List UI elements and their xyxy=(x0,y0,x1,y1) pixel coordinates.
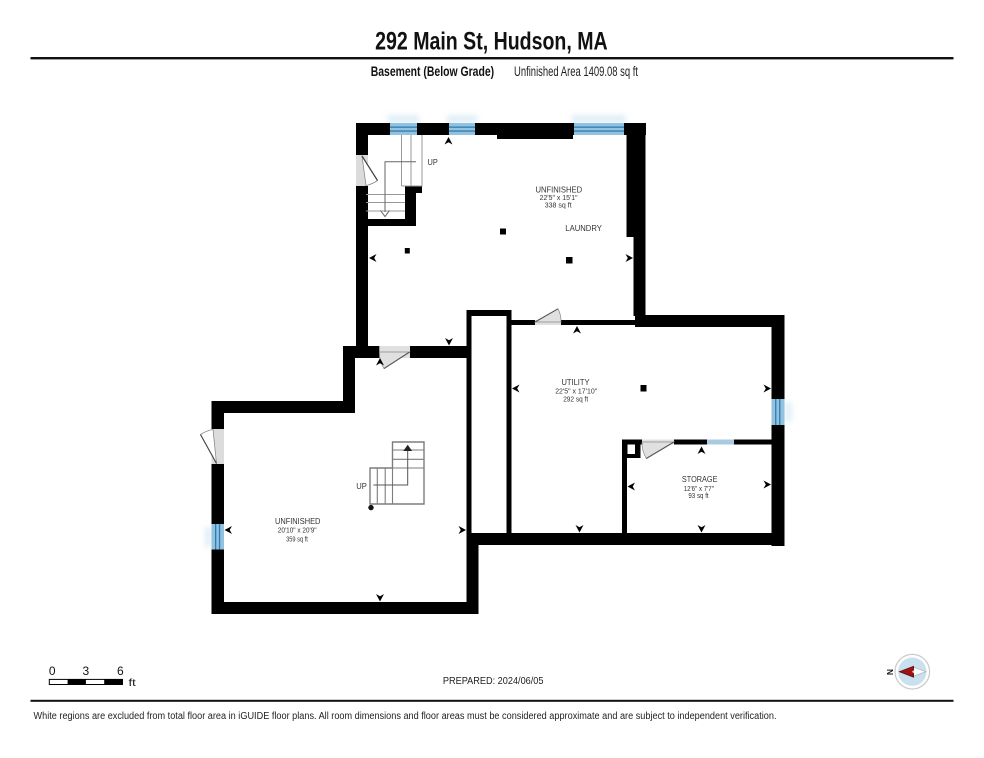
svg-text:93 sq ft: 93 sq ft xyxy=(688,491,709,500)
svg-text:6: 6 xyxy=(117,664,124,678)
svg-text:UP: UP xyxy=(428,157,439,167)
svg-text:PREPARED: 2024/06/05: PREPARED: 2024/06/05 xyxy=(443,675,544,687)
svg-text:359 sq ft: 359 sq ft xyxy=(286,535,308,544)
svg-text:0: 0 xyxy=(49,664,56,678)
svg-text:292 sq ft: 292 sq ft xyxy=(563,394,589,403)
svg-text:ft: ft xyxy=(129,677,136,689)
svg-text:338 sq ft: 338 sq ft xyxy=(545,200,573,209)
svg-text:292 Main St, Hudson, MA: 292 Main St, Hudson, MA xyxy=(375,28,608,56)
svg-text:3: 3 xyxy=(83,664,90,678)
svg-text:STORAGE: STORAGE xyxy=(682,475,718,484)
svg-text:Unfinished Area 1409.08 sq ft: Unfinished Area 1409.08 sq ft xyxy=(514,64,638,79)
svg-text:N: N xyxy=(885,669,895,675)
svg-text:20'10" x 20'9": 20'10" x 20'9" xyxy=(278,526,317,535)
svg-text:LAUNDRY: LAUNDRY xyxy=(565,224,602,233)
svg-text:UNFINISHED: UNFINISHED xyxy=(275,517,321,526)
svg-text:UP: UP xyxy=(356,481,367,491)
svg-text:White regions are excluded fro: White regions are excluded from total fl… xyxy=(34,711,777,722)
svg-text:Basement (Below Grade): Basement (Below Grade) xyxy=(371,64,494,79)
